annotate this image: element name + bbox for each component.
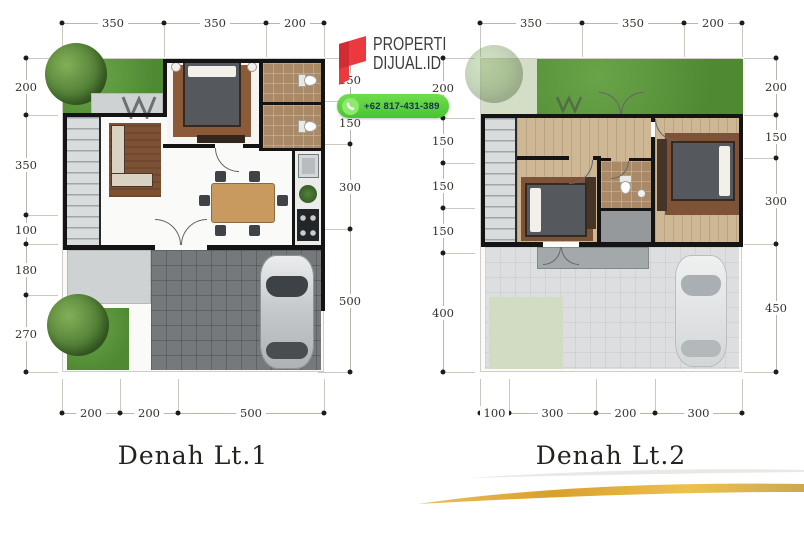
wall	[597, 156, 601, 246]
dim-label: 500	[335, 294, 365, 308]
dining-table	[211, 183, 275, 223]
tv-cabinet	[197, 135, 245, 143]
wardrobe	[657, 139, 667, 211]
whatsapp-contact-badge[interactable]: +62 817-431-389	[337, 94, 449, 118]
dim-tick	[322, 411, 327, 416]
wall	[321, 249, 325, 311]
staircase	[485, 118, 517, 244]
dim-tick	[348, 142, 353, 147]
dim-tick	[24, 113, 29, 118]
wall	[629, 158, 655, 161]
wall	[739, 114, 743, 246]
faded-tree-icon	[465, 45, 523, 103]
logo-text-line1: PROPERTI	[373, 35, 446, 54]
window-shade-mark	[555, 95, 583, 113]
dim-extension	[324, 379, 325, 410]
dim-tick	[348, 227, 353, 232]
dim-label: 200	[611, 406, 641, 420]
dim-label: 350	[516, 16, 546, 30]
dim-tick	[774, 113, 779, 118]
door-arc	[155, 219, 181, 245]
laundry-area	[601, 211, 651, 242]
dim-extension	[178, 379, 179, 410]
staircase	[67, 117, 101, 245]
dim-extension	[29, 372, 58, 373]
dim-tick	[740, 411, 745, 416]
stove	[297, 209, 319, 241]
dim-tick	[774, 56, 779, 61]
dim-tick	[682, 21, 687, 26]
dim-label: 100	[11, 223, 41, 237]
dim-extension	[596, 379, 597, 410]
dim-tick	[24, 213, 29, 218]
dim-tick	[774, 156, 779, 161]
dim-tick	[653, 411, 658, 416]
dining-chair	[215, 171, 226, 182]
dim-tick	[176, 411, 181, 416]
dim-extension	[120, 379, 121, 410]
dining-chair	[249, 171, 260, 182]
dim-tick	[24, 293, 29, 298]
dim-extension	[744, 372, 773, 373]
wall	[243, 144, 263, 148]
dim-label: 300	[761, 194, 791, 208]
dim-extension	[318, 372, 347, 373]
wall	[481, 114, 485, 246]
floorplan-canvas: 3503502002002005002003501001802701501503…	[0, 0, 804, 535]
dim-tick	[24, 370, 29, 375]
bed	[671, 141, 735, 201]
floorplan-denah-lt2	[480, 58, 742, 372]
dim-extension	[29, 295, 58, 296]
dim-label: 450	[761, 301, 791, 315]
dim-label: 100	[480, 406, 510, 420]
dim-tick	[322, 21, 327, 26]
dim-label: 300	[335, 180, 365, 194]
kitchen-sink	[298, 154, 319, 178]
dim-label: 300	[684, 406, 714, 420]
dim-extension	[29, 115, 58, 116]
dim-extension	[266, 26, 267, 57]
bathroom-sink	[637, 189, 646, 198]
dim-line	[776, 58, 777, 372]
nightstand	[171, 62, 181, 72]
dim-extension	[744, 244, 773, 245]
dim-tick	[441, 206, 446, 211]
dining-chair	[215, 225, 226, 236]
dim-extension	[29, 244, 58, 245]
dim-extension	[164, 26, 165, 57]
dim-label: 270	[11, 327, 41, 341]
dim-tick	[594, 411, 599, 416]
dining-chair	[249, 225, 260, 236]
dim-tick	[441, 161, 446, 166]
door-arc	[215, 148, 239, 172]
dim-extension	[446, 208, 475, 209]
dim-extension	[744, 158, 773, 159]
dim-extension	[744, 115, 773, 116]
dim-label: 150	[428, 179, 458, 193]
dim-tick	[441, 370, 446, 375]
wall	[292, 151, 295, 245]
dim-extension	[446, 118, 475, 119]
wall	[651, 137, 655, 246]
dim-tick	[60, 21, 65, 26]
dim-tick	[264, 21, 269, 26]
wall	[321, 59, 325, 249]
dim-tick	[348, 370, 353, 375]
l-sofa	[111, 173, 153, 187]
dim-tick	[60, 411, 65, 416]
dim-extension	[62, 379, 63, 410]
bed	[183, 61, 241, 127]
wall	[259, 59, 263, 151]
dim-label: 350	[618, 16, 648, 30]
dim-extension	[446, 253, 475, 254]
properti-dijual-logo-icon	[336, 35, 368, 85]
dim-extension	[684, 26, 685, 57]
brand-logo: PROPERTI DIJUAL.ID	[336, 33, 466, 91]
wall	[163, 59, 167, 117]
dim-label: 200	[134, 406, 164, 420]
toilet	[619, 175, 632, 194]
wall	[263, 102, 321, 105]
dim-tick	[774, 370, 779, 375]
door-arc	[181, 219, 207, 245]
tree-icon	[47, 294, 109, 356]
dim-label: 200	[698, 16, 728, 30]
dim-label: 180	[11, 263, 41, 277]
logo-text-line2: DIJUAL.ID	[373, 54, 446, 73]
wall	[163, 59, 325, 63]
dim-label: 350	[98, 16, 128, 30]
bed	[525, 183, 587, 237]
wall	[63, 113, 67, 249]
wall	[597, 158, 611, 161]
wall	[597, 208, 655, 211]
dim-tick	[162, 21, 167, 26]
dim-extension	[742, 26, 743, 57]
dim-tick	[441, 251, 446, 256]
phone-number: +62 817-431-389	[364, 101, 440, 112]
dim-tick	[774, 242, 779, 247]
wall	[63, 113, 167, 117]
wall	[163, 144, 215, 148]
toilet	[298, 74, 317, 87]
dim-tick	[580, 21, 585, 26]
whatsapp-icon	[342, 98, 359, 115]
nightstand	[247, 62, 257, 72]
dim-label: 300	[538, 406, 568, 420]
wall	[481, 114, 743, 118]
dim-label: 150	[428, 134, 458, 148]
dim-extension	[446, 372, 475, 373]
dim-extension	[582, 26, 583, 57]
dim-tick	[478, 21, 483, 26]
gold-swoosh	[408, 468, 804, 524]
dim-label: 200	[280, 16, 310, 30]
dim-label: 200	[761, 80, 791, 94]
dim-extension	[324, 26, 325, 57]
dim-label: 500	[236, 406, 266, 420]
dim-tick	[24, 242, 29, 247]
dim-tick	[740, 21, 745, 26]
dim-label: 350	[11, 158, 41, 172]
dim-label: 150	[428, 224, 458, 238]
dim-extension	[29, 215, 58, 216]
dim-label: 200	[11, 80, 41, 94]
faded-yard-grass	[489, 297, 563, 369]
car	[260, 255, 314, 369]
toilet	[298, 120, 317, 133]
plan-title-lt2: Denah Lt.2	[536, 441, 686, 470]
dim-extension	[655, 379, 656, 410]
floorplan-denah-lt1	[62, 58, 324, 372]
dim-tick	[24, 56, 29, 61]
dim-extension	[446, 163, 475, 164]
dim-extension	[744, 58, 773, 59]
dim-label: 400	[428, 306, 458, 320]
dining-chair	[277, 195, 288, 206]
dim-label: 200	[76, 406, 106, 420]
wall	[517, 156, 569, 160]
dim-extension	[742, 379, 743, 410]
dining-chair	[199, 195, 210, 206]
plan-title-lt1: Denah Lt.1	[118, 441, 268, 470]
dim-label: 150	[761, 130, 791, 144]
faded-car	[675, 255, 727, 367]
dim-label: 350	[200, 16, 230, 30]
plant-icon	[299, 185, 317, 203]
dim-tick	[118, 411, 123, 416]
